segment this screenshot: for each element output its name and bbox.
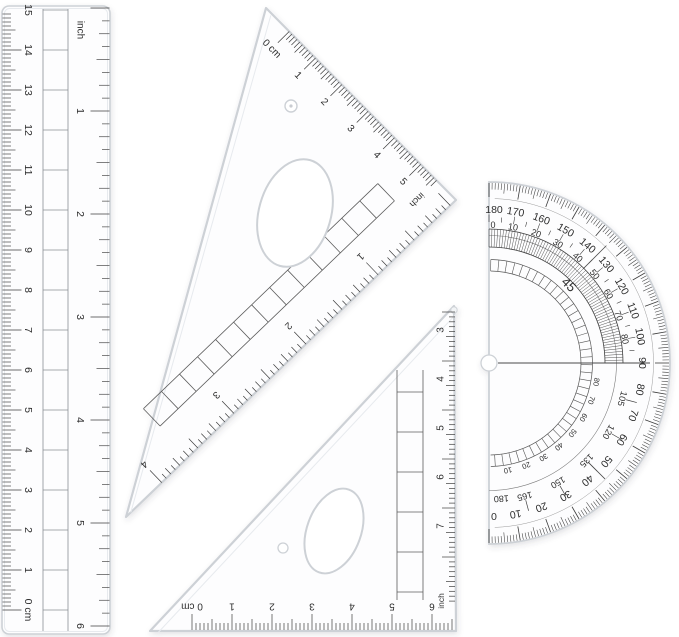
ruler-cm-number: 8 <box>22 287 34 293</box>
small-set-square-right-number: 3 <box>436 327 447 333</box>
hanging-hole <box>278 543 288 553</box>
protractor-outer-number: 80 <box>633 383 647 397</box>
ruler-cm-number: 0 cm <box>22 599 34 622</box>
small-set-square-right-number: 6 <box>436 474 447 480</box>
geometry-set-illustration: 0 cm123456789101112131415inch123456 0 cm… <box>0 0 679 637</box>
protractor-inner-number: 180 <box>493 493 509 504</box>
ruler: 0 cm123456789101112131415inch123456 <box>2 4 110 634</box>
protractor-outer-number: 180 <box>485 204 503 216</box>
ruler-cm-number: 2 <box>22 527 34 533</box>
small-set-square-bottom-number: 6 <box>429 601 435 612</box>
ruler-cm-number: 11 <box>22 165 34 176</box>
small-set-square-bottom-number: 2 <box>269 601 275 612</box>
small-set-square-right-number: 5 <box>436 425 447 431</box>
ruler-inch-number: 3 <box>74 314 86 320</box>
ruler-inch-number: 4 <box>74 417 86 423</box>
protractor-outer-number: 0 <box>491 510 497 522</box>
hanging-hole-center <box>289 104 292 107</box>
ruler-cm-number: 3 <box>22 487 34 493</box>
ruler-cm-number: 7 <box>22 327 34 333</box>
small-set-square-bottom-number: 4 <box>349 601 355 612</box>
product-photo-geometry-set: 0 cm123456789101112131415inch123456 0 cm… <box>0 0 679 637</box>
ruler-inch-number: 6 <box>74 623 86 629</box>
protractor-small-number: 10 <box>503 465 513 475</box>
ruler-cm-number: 15 <box>22 4 34 16</box>
small-set-square-bottom-number: 3 <box>309 601 315 612</box>
small-set-square-right-number: 4 <box>436 376 447 382</box>
ruler-cm-number: 14 <box>22 44 34 56</box>
ruler-inch-number: 1 <box>74 108 86 114</box>
small-set-square-bottom-number: 0 cm <box>181 601 203 612</box>
ruler-cm-number: 10 <box>22 204 34 216</box>
small-set-square-right-number: 7 <box>436 523 447 529</box>
ruler-cm-number: 9 <box>22 247 34 253</box>
center-notch <box>481 355 497 371</box>
ruler-inch-number: 2 <box>74 211 86 217</box>
ruler-body <box>2 6 110 634</box>
ruler-cm-number: 12 <box>22 124 34 136</box>
protractor: 1801701601501401301201101009080706050403… <box>481 182 670 544</box>
ruler-cm-number: 4 <box>22 447 34 453</box>
small-set-square-right-unit-label: inch <box>436 593 446 609</box>
ruler-cm-number: 6 <box>22 367 34 373</box>
ruler-cm-number: 13 <box>22 84 34 96</box>
protractor-small-number: 80 <box>591 377 601 387</box>
small-set-square-bottom-number: 1 <box>229 601 235 612</box>
ruler-cm-number: 5 <box>22 407 34 413</box>
ruler-inch-unit-label: inch <box>75 21 86 39</box>
protractor-outer-number: 10 <box>509 507 523 521</box>
ruler-inch-number: 5 <box>74 520 86 526</box>
small-set-square-bottom-number: 5 <box>389 601 395 612</box>
protractor-inner-number: 0 <box>490 220 495 230</box>
ruler-cm-number: 1 <box>22 567 34 573</box>
